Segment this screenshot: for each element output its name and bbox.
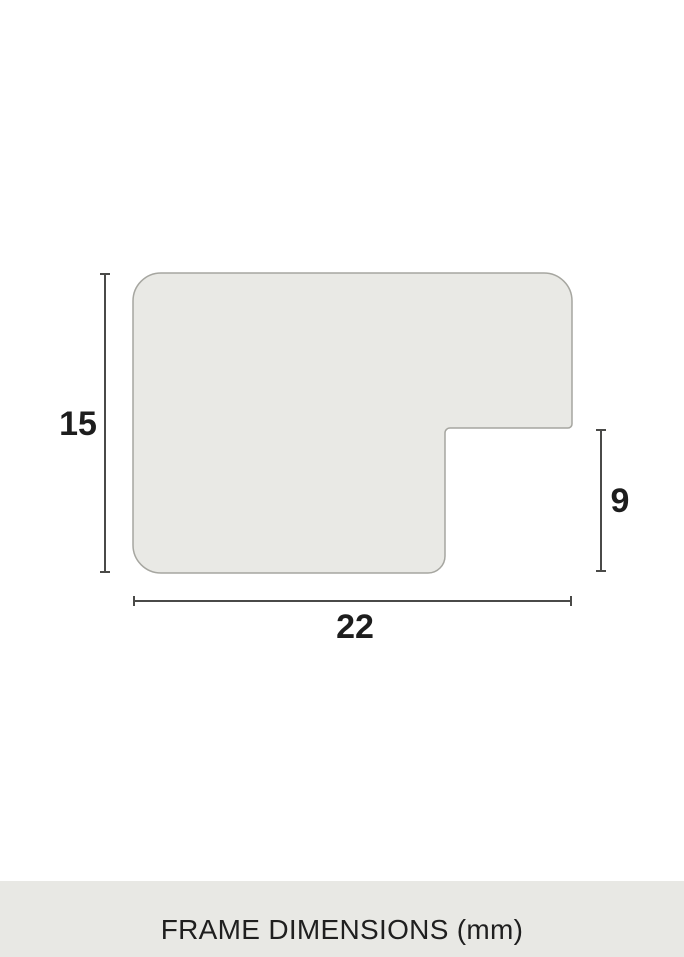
- frame-dimensions-screen: 15 22 9 FRAME DIMENSIONS (mm): [0, 0, 684, 957]
- width-dimension-line: [134, 596, 571, 606]
- moulding-profile-shape: [133, 273, 572, 573]
- frame-profile-diagram: 15 22 9: [0, 0, 684, 881]
- footer-caption: FRAME DIMENSIONS (mm): [0, 881, 684, 957]
- rabbet-dimension-value: 9: [590, 486, 650, 516]
- frame-profile-drawing: [0, 0, 684, 881]
- footer-bar: FRAME DIMENSIONS (mm): [0, 881, 684, 957]
- height-dimension-value: 15: [48, 409, 108, 439]
- width-dimension-value: 22: [325, 612, 385, 642]
